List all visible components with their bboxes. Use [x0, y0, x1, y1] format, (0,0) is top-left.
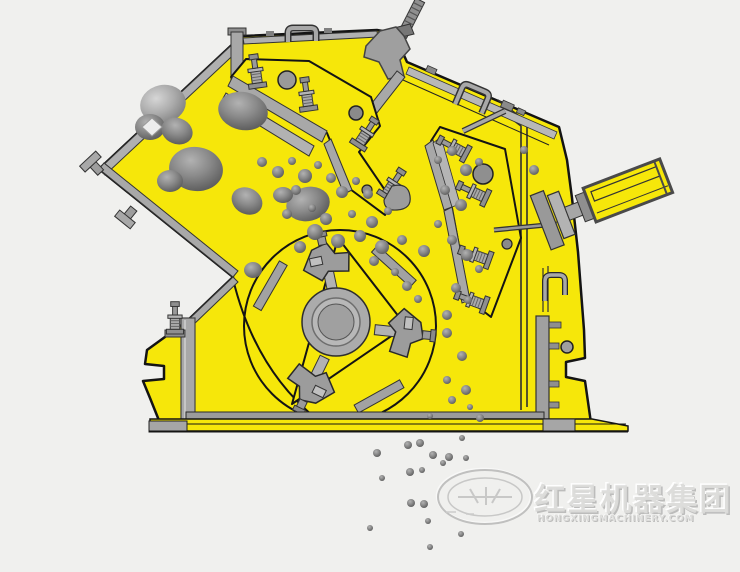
particle	[348, 210, 356, 218]
watermark-text-en: HONGXINGMACHINERY.COM HONGXINGMACHINERY.…	[537, 514, 696, 526]
svg-text:HONGXINGMACHINERY.COM: HONGXINGMACHINERY.COM	[537, 514, 694, 524]
particle	[425, 518, 431, 524]
particle	[307, 224, 323, 240]
impact-crusher-illustration: 红星机器集团 红星机器集团 红星机器集团 HONGXINGMACHINERY.C…	[0, 0, 740, 572]
particle	[407, 499, 415, 507]
particle	[326, 173, 336, 183]
particle	[414, 295, 422, 303]
particle	[463, 455, 469, 461]
base-foot-left	[149, 421, 187, 432]
particle	[460, 164, 472, 176]
particle	[320, 213, 332, 225]
particle	[375, 240, 389, 254]
particle	[448, 396, 456, 404]
particle	[520, 146, 528, 154]
rock	[157, 170, 183, 192]
particle	[272, 166, 284, 178]
particle	[420, 500, 428, 508]
particle	[440, 185, 450, 195]
pivot-hole	[349, 106, 363, 120]
particle	[461, 385, 471, 395]
particle	[434, 156, 442, 164]
particle	[384, 207, 392, 215]
particle	[404, 441, 412, 449]
particle	[314, 161, 322, 169]
particle	[467, 404, 473, 410]
particle	[373, 449, 381, 457]
particle	[451, 283, 461, 293]
particle	[402, 281, 412, 291]
rock	[273, 187, 293, 203]
particle	[529, 165, 539, 175]
particle	[445, 453, 453, 461]
particle	[298, 169, 312, 183]
rock	[244, 262, 262, 278]
particle	[419, 467, 425, 473]
particle	[442, 310, 452, 320]
particle	[294, 241, 306, 253]
wall-channel	[536, 316, 549, 428]
particle	[331, 234, 345, 248]
particle	[397, 235, 407, 245]
particle	[406, 468, 414, 476]
particle	[354, 230, 366, 242]
particle	[418, 245, 430, 257]
particle	[461, 249, 473, 261]
particle	[427, 413, 433, 419]
particle	[475, 158, 483, 166]
particle	[257, 157, 267, 167]
particle	[429, 451, 437, 459]
particle	[447, 235, 457, 245]
particle	[363, 189, 373, 199]
wall-hole	[561, 341, 573, 353]
particle	[434, 220, 442, 228]
pivot-hole	[473, 164, 493, 184]
particle	[416, 439, 424, 447]
pivot-hole	[278, 71, 296, 89]
particle	[476, 414, 484, 422]
base-foot-right	[543, 419, 575, 432]
particle	[366, 216, 378, 228]
particle	[391, 268, 399, 276]
particle	[457, 351, 467, 361]
particle	[427, 544, 433, 550]
particle	[442, 328, 452, 338]
particle	[443, 376, 451, 384]
particle	[336, 186, 348, 198]
particle	[464, 296, 472, 304]
particle	[291, 185, 301, 195]
particle	[288, 157, 296, 165]
particle	[352, 177, 360, 185]
particle	[369, 256, 379, 266]
particle	[458, 531, 464, 537]
particle	[455, 199, 467, 211]
particle	[379, 475, 385, 481]
particle	[282, 209, 292, 219]
particle	[459, 435, 465, 441]
particle	[475, 265, 483, 273]
particle	[447, 146, 457, 156]
particle	[308, 204, 316, 212]
particle	[367, 525, 373, 531]
pivot-hole	[502, 239, 512, 249]
particle	[440, 460, 446, 466]
